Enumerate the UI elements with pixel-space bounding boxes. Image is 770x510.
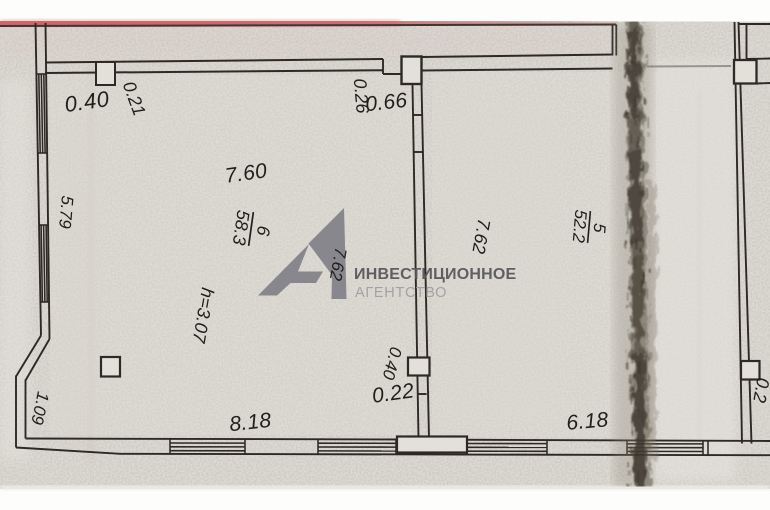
svg-text:0.66: 0.66: [364, 89, 408, 116]
svg-text:8.18: 8.18: [228, 409, 272, 436]
svg-text:52.2: 52.2: [569, 209, 591, 244]
svg-text:АГЕНТСТВО: АГЕНТСТВО: [355, 285, 447, 301]
svg-text:ИНВЕСТИЦИОННОЕ: ИНВЕСТИЦИОННОЕ: [354, 266, 516, 283]
svg-text:5.79: 5.79: [55, 195, 77, 230]
svg-text:6.18: 6.18: [565, 408, 609, 435]
